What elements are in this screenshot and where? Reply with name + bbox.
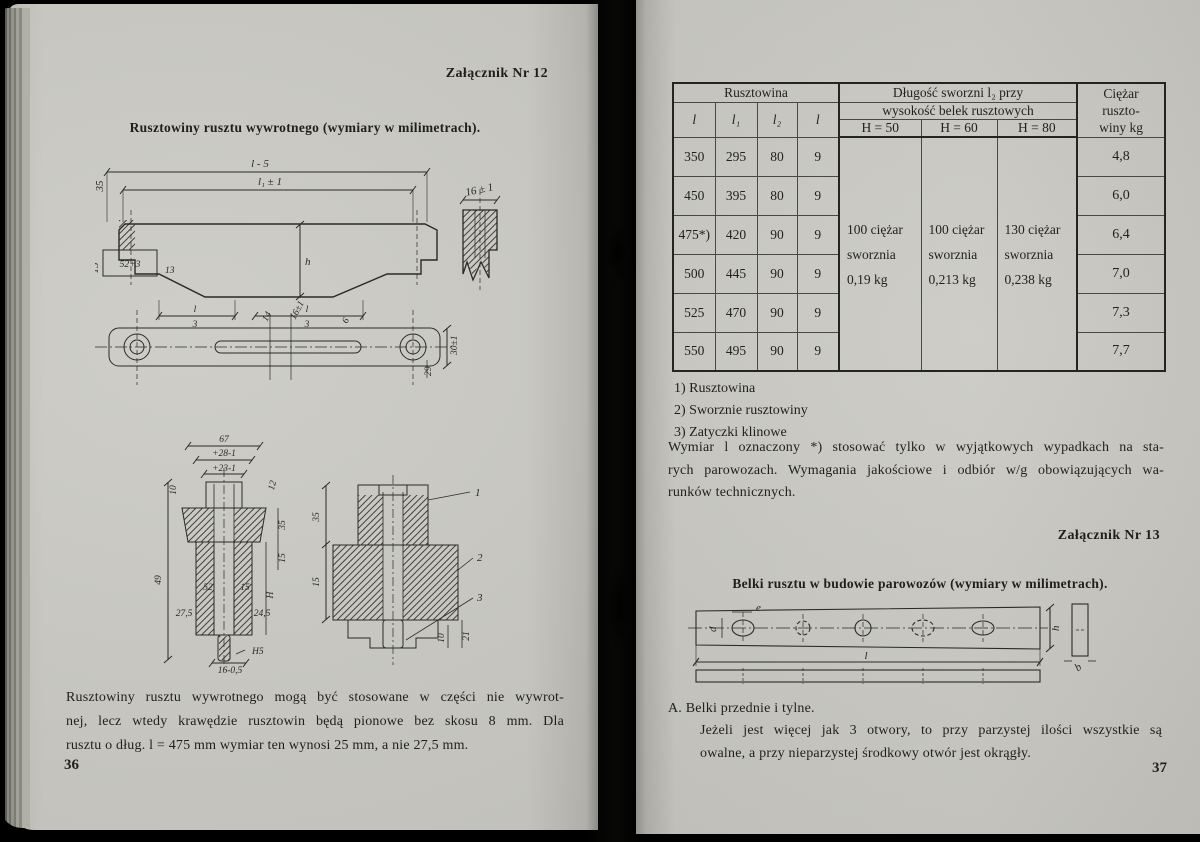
left-paragraph-line: nej, lecz wtedy krawędzie rusztowin będą… <box>66 710 564 734</box>
page-number-37: 37 <box>1152 760 1167 777</box>
footnote: 2) Sworznie rusztowiny <box>674 400 808 422</box>
hatch-wall-right <box>234 542 252 635</box>
annex-13-label: Załącznik Nr 13 <box>992 528 1160 544</box>
cell-bolt-h50: 100 ciężar sworznia 0,19 kg <box>839 137 921 371</box>
dim-21: 21 <box>462 631 472 641</box>
th-wysokosc: wysokość belek rusztowych <box>839 102 1077 119</box>
dim-15: 15 <box>95 262 101 274</box>
dim-24-5: 24,5 <box>254 609 271 619</box>
th-ciezar-line: Ciężar <box>1103 86 1138 101</box>
cell-l: 550 <box>673 332 715 371</box>
bolt-line: sworznia <box>1005 247 1054 262</box>
hatch-pin <box>219 636 230 660</box>
section-a-line: owalne, a przy nieparzystej środkowy otw… <box>700 742 1162 765</box>
th-ciezar-line: winy kg <box>1099 120 1143 135</box>
dim-29: 29 <box>424 366 434 376</box>
bolt-line: 130 ciężar <box>1005 222 1061 237</box>
note-line: runków technicznych. <box>668 482 1164 505</box>
th-l1: l₁ <box>715 102 757 137</box>
dim-l1-tol: l₁ ± 1 <box>258 176 282 188</box>
cell-l2: 90 <box>757 215 797 254</box>
dim-27-5: 27,5 <box>176 609 193 619</box>
th-ciezar: Ciężar ruszto- winy kg <box>1077 83 1165 137</box>
note-paragraph: Wymiar l oznaczony *) stosować tylko w w… <box>668 437 1164 505</box>
dim-l3b-bot: 3 <box>304 320 310 330</box>
th-h80: H = 80 <box>997 119 1077 137</box>
dim-l3a-bot: 3 <box>192 320 198 330</box>
th-dlugosc-sworzni: Długość sworzni l₂ przy <box>839 83 1077 102</box>
left-page-title: Rusztowiny rusztu wywrotnego (wymiary w … <box>70 120 540 136</box>
th-l-last: l <box>797 102 839 137</box>
section-a-text: Jeżeli jest więcej jak 3 otwory, to przy… <box>700 719 1162 765</box>
dim-35: 35 <box>95 180 106 193</box>
cell-l2: 80 <box>757 176 797 215</box>
cell-kg: 6,0 <box>1077 176 1165 215</box>
hatch-left-end <box>119 220 135 250</box>
annex-12-label: Załącznik Nr 12 <box>380 66 548 82</box>
cell-t: 9 <box>797 215 839 254</box>
bolt-line: sworznia <box>847 247 896 262</box>
dim-6: 6 <box>341 316 352 325</box>
bolt-line: 0,19 kg <box>847 272 888 287</box>
cell-l1: 295 <box>715 137 757 176</box>
dim-h: h <box>305 256 311 268</box>
dim-H5: H5 <box>251 647 264 657</box>
table-footnotes: 1) Rusztowina 2) Sworznie rusztowiny 3) … <box>674 378 808 444</box>
hatch-top-block-right <box>403 495 428 545</box>
book-scan: Załącznik Nr 12 Rusztowiny rusztu wywrot… <box>0 0 1200 842</box>
dim-35c: 35 <box>312 512 322 523</box>
cell-kg: 4,8 <box>1077 137 1165 176</box>
dim-15a: 15 <box>278 553 288 563</box>
th-l2: l₂ <box>757 102 797 137</box>
dim-49: 49 <box>154 575 164 585</box>
cell-l: 500 <box>673 254 715 293</box>
th-l: l <box>673 102 715 137</box>
th-h50: H = 50 <box>839 119 921 137</box>
figure-grate-beam: e d h l b <box>688 598 1108 690</box>
cell-t: 9 <box>797 254 839 293</box>
th-ciezar-line: ruszto- <box>1102 103 1140 118</box>
cell-l: 525 <box>673 293 715 332</box>
bolt-line: 0,213 kg <box>929 272 976 287</box>
cell-l1: 495 <box>715 332 757 371</box>
cell-l1: 445 <box>715 254 757 293</box>
dim-16b: 16±1 <box>289 300 307 322</box>
cell-l1: 470 <box>715 293 757 332</box>
dim-12: 12 <box>267 479 279 491</box>
callout-3: 3 <box>476 592 483 604</box>
cell-t: 9 <box>797 137 839 176</box>
dim-H: H <box>266 590 276 599</box>
dim-b: b <box>1073 661 1085 674</box>
hatch-top-block-left <box>358 495 383 545</box>
note-line: Wymiar l oznaczony *) stosować tylko w w… <box>668 437 1164 460</box>
hatch-mid-block-left <box>333 545 383 620</box>
table-row: 350 295 80 9 100 ciężar sworznia 0,19 kg… <box>673 137 1165 176</box>
dim-d: d <box>707 626 719 632</box>
dim-l3b-top: l <box>306 305 309 315</box>
grate-bar-table: Rusztowina Długość sworzni l₂ przy Cięża… <box>672 82 1166 372</box>
cell-l2: 80 <box>757 137 797 176</box>
page-edge-stack <box>0 8 30 828</box>
dim-14: 14 <box>261 310 274 323</box>
dim-16-tol: 16 ± 1 <box>464 181 494 199</box>
dim-e: e <box>756 602 761 614</box>
cell-kg: 7,0 <box>1077 254 1165 293</box>
callout-2: 2 <box>477 552 483 564</box>
bolt-line: 100 ciężar <box>847 222 903 237</box>
bolt-line: 100 ciężar <box>929 222 985 237</box>
dim-10: 10 <box>169 485 179 495</box>
footnote: 1) Rusztowina <box>674 378 808 400</box>
dim-l-beam: l <box>864 650 867 662</box>
section-a-line: Jeżeli jest więcej jak 3 otwory, to przy… <box>700 719 1162 742</box>
cell-bolt-h60: 100 ciężar sworznia 0,213 kg <box>921 137 997 371</box>
cell-l: 350 <box>673 137 715 176</box>
cell-t: 9 <box>797 293 839 332</box>
cell-l1: 395 <box>715 176 757 215</box>
left-paragraph: Rusztowiny rusztu wywrotnego mogą być st… <box>66 686 564 758</box>
bolt-line: 0,238 kg <box>1005 272 1052 287</box>
right-page-title: Belki rusztu w budowie parowozów (wymiar… <box>700 576 1140 592</box>
section-a-heading: A. Belki przednie i tylne. <box>668 697 815 721</box>
left-paragraph-line: rusztu o dług. l = 475 mm wymiar ten wyn… <box>66 734 564 758</box>
cell-kg: 7,7 <box>1077 332 1165 371</box>
dim-28: +28-1 <box>212 449 236 459</box>
dim-52-3: 52+3 <box>120 260 141 270</box>
cell-bolt-h80: 130 ciężar sworznia 0,238 kg <box>997 137 1077 371</box>
dim-l-minus-5: l - 5 <box>251 158 269 170</box>
hatch-mid-block-right <box>403 545 458 620</box>
dim-35b: 35 <box>278 520 288 531</box>
dim-67: 67 <box>219 435 230 445</box>
dim-10b: 10 <box>437 633 447 643</box>
bolt-line: sworznia <box>929 247 978 262</box>
page-number-36: 36 <box>64 757 79 774</box>
cell-l2: 90 <box>757 332 797 371</box>
cell-l1: 420 <box>715 215 757 254</box>
cell-kg: 7,3 <box>1077 293 1165 332</box>
dim-h-beam: h <box>1050 625 1062 631</box>
dim-23: +23-1 <box>212 464 236 474</box>
cell-l2: 90 <box>757 293 797 332</box>
note-line: rych parowozach. Wymagania jakościowe i … <box>668 460 1164 483</box>
th-h60: H = 60 <box>921 119 997 137</box>
figure-grate-bar-views: l - 5 l₁ ± 1 35 15 52+3 13 h l 3 l 3 16 … <box>95 150 535 390</box>
cell-l2: 90 <box>757 254 797 293</box>
cell-t: 9 <box>797 176 839 215</box>
cell-l: 475*) <box>673 215 715 254</box>
cell-t: 9 <box>797 332 839 371</box>
cell-kg: 6,4 <box>1077 215 1165 254</box>
dim-l3a-top: l <box>194 305 197 315</box>
left-paragraph-line: Rusztowiny rusztu wywrotnego mogą być st… <box>66 686 564 710</box>
dim-30-tol: 30±1 <box>450 336 460 356</box>
callout-1: 1 <box>475 487 481 499</box>
th-rusztowina: Rusztowina <box>673 83 839 102</box>
dim-16-05: 16-0,5 <box>218 666 243 675</box>
dim-13: 13 <box>165 266 175 276</box>
cell-l: 450 <box>673 176 715 215</box>
hatch-wall-left <box>196 542 214 635</box>
dim-15c: 15 <box>312 577 322 587</box>
